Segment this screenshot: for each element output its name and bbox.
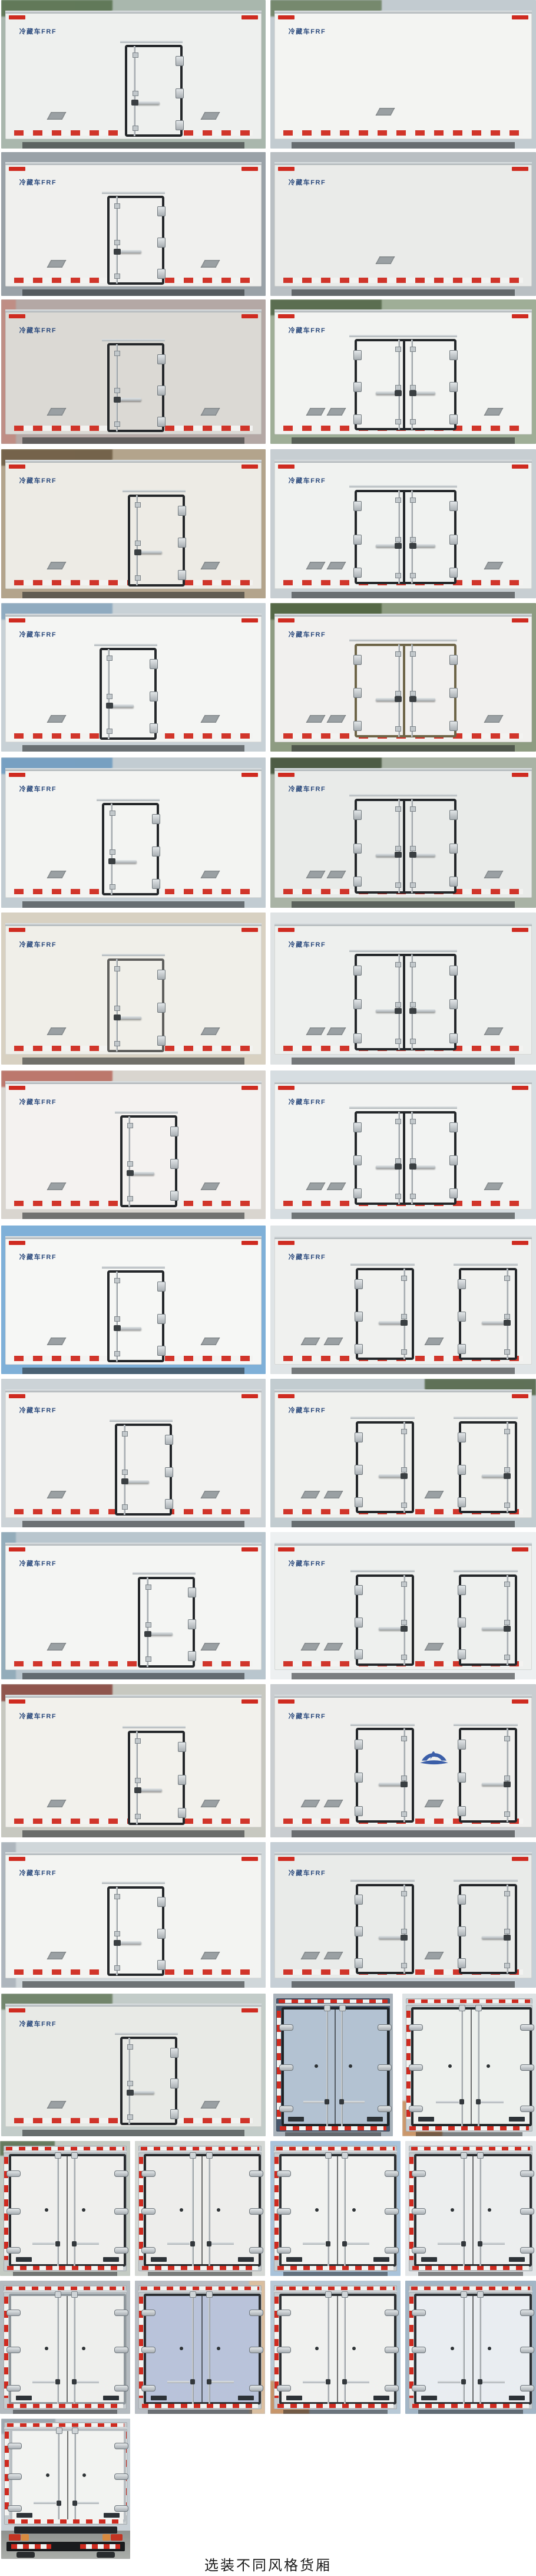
hinge <box>353 877 362 887</box>
hinge <box>449 535 458 545</box>
truck-rear-photo: 冷藏车FRF <box>1 1070 266 1219</box>
top-reflective-strip <box>6 2287 125 2290</box>
door-divider <box>201 2156 203 2264</box>
door-lintel <box>398 639 457 641</box>
rod-cam <box>206 2152 213 2159</box>
box-label: 冷藏车FRF <box>19 940 57 949</box>
box-label: 冷藏车FRF <box>19 784 57 793</box>
hinge <box>409 2064 423 2071</box>
top-rail <box>5 1236 262 1239</box>
top-rail <box>274 1389 532 1392</box>
door-lintel <box>102 1266 165 1269</box>
door-stop <box>451 2347 454 2350</box>
hinge <box>150 723 158 733</box>
lock-latch <box>326 2241 330 2246</box>
lock-handle <box>34 2502 56 2504</box>
lock-handle <box>167 2381 190 2383</box>
lock-latch <box>401 1626 408 1632</box>
hinge <box>152 846 160 857</box>
hinge <box>353 414 362 424</box>
lock-rod <box>327 2153 329 2267</box>
hinge <box>355 1465 363 1475</box>
corner-reflector-left <box>9 314 25 318</box>
lock-latch <box>476 2099 481 2104</box>
hinge <box>277 2310 291 2316</box>
door-frame <box>128 495 185 587</box>
lock-handle <box>32 2242 55 2245</box>
corner-reflector-right <box>512 773 528 777</box>
cargo-box: 冷藏车FRF <box>274 923 532 1055</box>
rod-guide <box>395 726 401 732</box>
rod-guide <box>145 1622 151 1628</box>
document-plate <box>424 1800 444 1807</box>
hinge <box>170 1126 178 1137</box>
hinge <box>355 1958 363 1968</box>
door-frame <box>403 799 456 894</box>
document-plate <box>326 1027 346 1035</box>
nameplate <box>373 2257 389 2262</box>
hinge <box>114 2208 128 2215</box>
reflective-strip-bottom <box>142 2266 258 2270</box>
door-lintel <box>454 1570 518 1572</box>
door-frame <box>128 1731 185 1825</box>
door-lintel <box>97 799 160 801</box>
hinge <box>385 2170 399 2177</box>
lock-latch <box>504 1781 511 1787</box>
lock-latch <box>401 1935 408 1941</box>
chassis-shadow <box>22 2130 244 2136</box>
chassis-shadow <box>22 1673 244 1679</box>
hinge <box>249 2347 263 2353</box>
document-plate <box>201 1027 220 1035</box>
door-frame <box>403 1111 456 1205</box>
door-frame <box>355 490 408 584</box>
door-stop <box>315 2347 319 2350</box>
truck-rear-photo: 冷藏车FRF <box>1 1379 266 1527</box>
rear-door-frame <box>144 2294 261 2405</box>
corner-reflector-left <box>9 2008 25 2012</box>
chassis-shadow <box>292 1981 515 1988</box>
lock-rod <box>192 2153 194 2267</box>
top-reflective-strip <box>276 2287 395 2290</box>
rod-guide <box>504 1655 510 1660</box>
lock-handle <box>211 2381 234 2383</box>
photo-grid: 冷藏车FRF冷藏车FRF冷藏车FRF冷藏车FRF冷藏车FRF冷藏车FRF冷藏车F… <box>0 0 536 2576</box>
hinge <box>157 417 166 427</box>
lock-latch <box>114 1014 121 1020</box>
lock-latch <box>127 2090 134 2096</box>
document-plate <box>201 871 220 878</box>
top-rail <box>5 309 262 312</box>
door-lintel <box>350 1417 415 1419</box>
rod-guide <box>410 962 416 967</box>
lock-rod <box>209 2153 210 2267</box>
document-plate <box>47 715 66 723</box>
rod-guide <box>401 1467 407 1473</box>
lock-latch <box>55 2241 60 2246</box>
hinge <box>449 999 458 1009</box>
lock-latch <box>401 1781 408 1787</box>
hinge <box>114 2170 128 2177</box>
rod-guide <box>135 575 141 581</box>
corner-reflector-right <box>241 15 258 19</box>
hinge <box>449 382 458 392</box>
door-stop <box>45 2208 48 2212</box>
truck-rear-photo <box>0 2141 130 2276</box>
hinge <box>353 655 362 665</box>
lock-handle <box>77 2381 99 2383</box>
document-plate <box>324 1800 343 1807</box>
hinge <box>458 1958 466 1968</box>
corner-reflector-left <box>9 928 25 932</box>
hinge <box>353 1188 362 1198</box>
truck-rear-photo: 冷藏车FRF <box>270 1379 536 1527</box>
hinge <box>353 966 362 976</box>
door-lintel <box>102 339 165 341</box>
top-rail <box>274 1852 532 1855</box>
rod-cam <box>325 2152 332 2159</box>
chassis-shadow <box>292 1673 515 1679</box>
document-plate <box>306 715 325 723</box>
corner-reflector-right <box>512 618 528 622</box>
rod-guide <box>401 1963 407 1968</box>
chassis-shadow <box>418 2272 523 2276</box>
hinge <box>458 1806 466 1816</box>
cargo-box: 冷藏车FRF <box>5 1695 262 1827</box>
cargo-box <box>138 2285 262 2409</box>
door-lintel <box>398 794 457 796</box>
lock-rod <box>479 2293 481 2405</box>
chassis-shadow <box>292 1830 515 1837</box>
chassis-shadow <box>148 2410 252 2414</box>
nameplate <box>238 2257 254 2262</box>
lock-latch <box>144 1631 151 1637</box>
rod-guide <box>107 694 113 699</box>
door-lintel <box>454 1417 518 1419</box>
corner-reflector-left <box>9 465 25 469</box>
hinge <box>355 1618 363 1628</box>
hinge <box>176 120 184 130</box>
corner-reflector-left <box>9 773 25 777</box>
top-rail <box>5 1389 262 1392</box>
rod-guide <box>504 1276 510 1281</box>
rod-guide <box>395 1039 401 1044</box>
hinge <box>141 2208 155 2215</box>
lock-handle <box>211 2242 234 2245</box>
hinge <box>8 2505 22 2512</box>
chassis-shadow <box>292 745 515 752</box>
corner-reflector-left <box>278 465 295 469</box>
corner-reflector-right <box>512 465 528 469</box>
document-plate <box>484 871 503 878</box>
chassis-shadow <box>292 1368 515 1374</box>
rod-guide <box>114 1041 120 1046</box>
document-plate <box>326 871 346 878</box>
document-plate <box>201 2101 220 2109</box>
nameplate <box>16 2396 32 2400</box>
document-plate <box>306 408 325 416</box>
hinge <box>353 382 362 392</box>
reflective-strip-bottom <box>14 1661 253 1666</box>
hinge <box>141 2347 155 2353</box>
corner-reflector-left <box>278 15 295 19</box>
door-lintel <box>454 1263 518 1266</box>
corner-reflector-right <box>241 1547 258 1551</box>
door-lintel <box>115 1111 178 1114</box>
corner-reflector-right <box>241 1086 258 1090</box>
lock-handle <box>148 1632 172 1635</box>
door-lintel <box>102 192 165 194</box>
hinge <box>458 1344 466 1354</box>
door-lintel <box>110 1419 173 1422</box>
reflective-strip-bottom <box>280 2126 386 2130</box>
document-plate <box>326 408 346 416</box>
hinge <box>378 2106 392 2112</box>
taillight-right-amber <box>102 2534 110 2541</box>
rod-guide <box>133 91 138 96</box>
document-plate <box>306 1182 325 1190</box>
nameplate <box>151 2257 167 2262</box>
hinge <box>449 966 458 976</box>
lock-rod <box>479 2153 481 2267</box>
document-plate <box>201 1338 220 1345</box>
lock-rod <box>209 2293 210 2405</box>
rod-guide <box>395 1002 401 1007</box>
chassis-shadow <box>13 2410 117 2414</box>
corner-reflector-right <box>512 167 528 171</box>
box-label: 冷藏车FRF <box>19 1097 57 1106</box>
cargo-box: 冷藏车FRF <box>274 768 532 898</box>
document-plate <box>300 1491 320 1498</box>
top-reflective-strip <box>141 2147 260 2150</box>
hinge <box>249 2208 263 2215</box>
door-stop <box>315 2208 319 2212</box>
corner-reflector-right <box>241 773 258 777</box>
rod-guide <box>114 1931 120 1936</box>
hinge <box>178 1742 186 1752</box>
box-label: 冷藏车FRF <box>19 1868 57 1877</box>
corner-reflector-left <box>278 618 295 622</box>
rod-guide <box>110 849 115 855</box>
truck-rear-photo: 冷藏车FRF <box>270 913 536 1065</box>
cargo-box: 冷藏车FRF <box>274 614 532 742</box>
lock-handle <box>117 1941 141 1944</box>
top-rail <box>5 162 262 165</box>
hinge <box>449 844 458 854</box>
nameplate <box>151 2396 167 2400</box>
lock-rod <box>341 2007 343 2126</box>
chassis-shadow <box>292 437 515 444</box>
lock-latch <box>207 2241 211 2246</box>
reflective-strip-bottom <box>142 2404 258 2408</box>
document-plate <box>484 562 503 569</box>
rod-guide <box>395 1194 401 1199</box>
corner-reflector-right <box>512 1857 528 1861</box>
lock-latch <box>114 249 121 255</box>
lock-latch <box>114 1325 121 1331</box>
door-divider <box>67 2156 68 2264</box>
top-rail <box>5 2004 262 2007</box>
rod-cam <box>72 2427 78 2434</box>
hinge <box>449 721 458 731</box>
nameplate <box>286 2396 302 2400</box>
door-frame <box>356 1268 415 1360</box>
truck-rear-photo: 冷藏车FRF <box>270 603 536 752</box>
chassis-shadow <box>292 1521 515 1527</box>
corner-reflector-left <box>9 1241 25 1245</box>
truck-rear-photo: 冷藏车FRF <box>270 757 536 908</box>
corner-reflector-left <box>278 1241 295 1245</box>
lock-latch <box>409 852 416 858</box>
cargo-box: 冷藏车FRF <box>274 460 532 589</box>
corner-reflector-right <box>512 15 528 19</box>
reflective-strip-bottom <box>283 278 523 283</box>
hinge <box>458 1497 466 1507</box>
door-stop <box>488 2347 491 2350</box>
top-reflective-strip <box>276 2147 395 2150</box>
lock-rod <box>344 2153 346 2267</box>
top-rail <box>138 2151 262 2153</box>
lock-rod <box>57 2153 59 2267</box>
lock-latch <box>395 543 402 549</box>
lock-handle <box>344 2101 365 2103</box>
truck-rear-photo: 冷藏车FRF <box>1 603 266 752</box>
box-label: 冷藏车FRF <box>19 1559 57 1568</box>
door-frame <box>107 1270 164 1362</box>
hinge <box>176 56 184 66</box>
chassis-shadow <box>285 2132 381 2136</box>
document-plate <box>201 1643 220 1651</box>
door-frame <box>403 644 456 737</box>
door-divider <box>472 2296 474 2403</box>
hinge <box>385 2247 399 2254</box>
document-plate <box>326 562 346 569</box>
box-label: 冷藏车FRF <box>289 940 326 949</box>
rear-door-frame <box>9 2154 126 2267</box>
document-plate <box>201 112 220 120</box>
rod-guide <box>401 1349 407 1355</box>
cargo-box: 冷藏车FRF <box>274 1695 532 1827</box>
hinge <box>449 414 458 424</box>
corner-reflector-right <box>512 928 528 932</box>
corner-reflector-left <box>9 1086 25 1090</box>
hinge <box>157 1036 166 1046</box>
lock-latch <box>504 1473 511 1479</box>
hinge <box>458 1773 466 1783</box>
door-stop <box>82 2347 85 2350</box>
lock-latch <box>55 2379 60 2384</box>
rod-cam <box>459 2005 465 2011</box>
top-rail <box>5 1695 262 1698</box>
truck-rear-photo <box>270 2141 401 2276</box>
lock-latch <box>131 100 138 106</box>
hinge <box>114 2443 128 2449</box>
hinge <box>170 1159 178 1169</box>
hinge <box>157 970 166 980</box>
document-plate <box>201 1952 220 1959</box>
lock-latch <box>325 2099 329 2104</box>
hinge <box>178 538 186 548</box>
corner-reflector-right <box>241 1857 258 1861</box>
corner-reflector-right <box>512 314 528 318</box>
corner-reflector-left <box>9 618 25 622</box>
hinge <box>355 1740 363 1750</box>
lock-rod <box>74 2153 75 2267</box>
hinge <box>449 568 458 578</box>
lock-handle <box>77 2242 99 2245</box>
door-frame <box>459 1728 518 1823</box>
corner-reflector-left <box>278 773 295 777</box>
hinge <box>378 2064 392 2071</box>
lock-latch <box>461 2379 466 2384</box>
truck-rear-photo <box>135 2141 265 2276</box>
rod-guide <box>395 537 401 542</box>
top-rail <box>5 614 262 617</box>
chassis-shadow <box>22 1058 244 1065</box>
door-stop <box>349 2064 352 2068</box>
hinge <box>157 354 166 364</box>
rod-guide <box>114 240 120 245</box>
lock-handle <box>130 1172 154 1175</box>
top-rail <box>274 923 532 926</box>
box-label: 冷藏车FRF <box>289 325 326 335</box>
top-rail <box>5 923 262 926</box>
hinge <box>188 1587 196 1597</box>
lock-latch <box>72 2501 77 2506</box>
hinge <box>157 269 166 279</box>
nameplate <box>509 2396 525 2400</box>
top-rail <box>274 1543 532 1546</box>
hinge <box>157 238 166 248</box>
reflective-strip-bottom <box>8 2519 124 2524</box>
hinge <box>178 570 186 580</box>
lock-handle <box>303 2242 325 2245</box>
top-rail <box>5 11 262 14</box>
door-frame <box>138 1577 195 1668</box>
document-plate <box>324 1643 343 1651</box>
lock-latch <box>114 1940 121 1946</box>
rod-guide <box>395 1119 401 1124</box>
nameplate <box>286 2257 302 2262</box>
rod-cam <box>324 2005 330 2011</box>
nameplate <box>421 2396 437 2400</box>
hinge <box>353 844 362 854</box>
nameplate <box>373 2396 389 2400</box>
hinge <box>249 2310 263 2316</box>
rod-guide <box>107 729 113 734</box>
cargo-box: 冷藏车FRF <box>5 768 262 898</box>
door-lintel <box>350 1570 415 1572</box>
bumper <box>6 2542 125 2551</box>
lock-latch <box>459 2099 464 2104</box>
corner-reflector-left <box>9 167 25 171</box>
door-frame <box>120 1115 177 1207</box>
hinge <box>353 721 362 731</box>
lock-latch <box>478 2379 482 2384</box>
top-reflective-strip <box>408 1999 530 2003</box>
reflective-strip-bottom <box>7 2404 123 2408</box>
rod-guide <box>410 691 416 696</box>
box-label: 冷藏车FRF <box>19 27 57 36</box>
door-stop <box>315 2064 318 2068</box>
lock-latch <box>409 543 416 549</box>
lock-handle <box>117 1016 141 1019</box>
door-stop <box>217 2208 220 2212</box>
lock-latch <box>207 2379 211 2384</box>
rod-guide <box>504 1503 510 1508</box>
lock-latch <box>409 1008 416 1014</box>
rod-guide <box>145 1585 151 1590</box>
